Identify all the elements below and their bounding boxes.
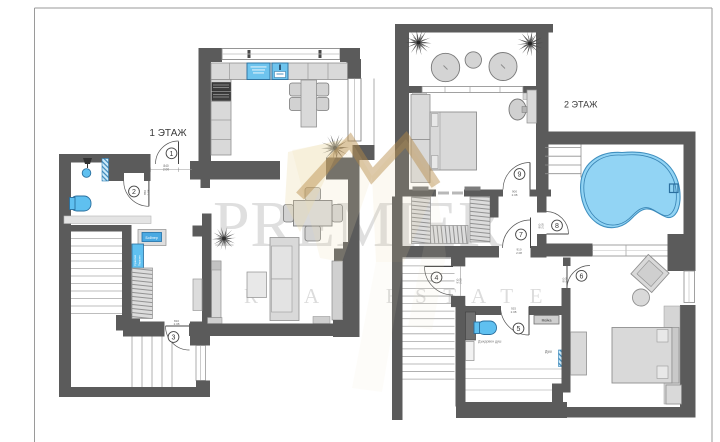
svg-text:8: 8 [555, 223, 559, 230]
svg-text:2.08: 2.08 [174, 322, 180, 326]
svg-text:Сушилня: Сушилня [133, 254, 137, 266]
svg-text:2: 2 [132, 189, 136, 196]
svg-text:2.08: 2.08 [565, 277, 569, 283]
svg-text:Мойка: Мойка [542, 319, 552, 323]
svg-text:2.08: 2.08 [512, 193, 518, 197]
svg-text:6: 6 [580, 274, 584, 281]
svg-text:2.08: 2.08 [516, 251, 522, 255]
svg-text:2.08: 2.08 [541, 223, 545, 229]
svg-text:2.00: 2.00 [163, 168, 169, 172]
svg-text:2.08: 2.08 [511, 310, 517, 314]
svg-text:Душ: Душ [545, 350, 552, 354]
svg-text:1 ЭТАЖ: 1 ЭТАЖ [149, 128, 187, 139]
svg-text:2.08: 2.08 [459, 278, 463, 284]
svg-text:3: 3 [172, 335, 176, 342]
svg-text:2.08: 2.08 [147, 189, 151, 195]
svg-text:9: 9 [518, 172, 522, 179]
svg-text:7: 7 [519, 232, 523, 239]
svg-text:1: 1 [170, 151, 174, 158]
svg-text:Пералня: Пералня [138, 255, 142, 266]
svg-text:5: 5 [517, 326, 521, 333]
svg-text:Дъждовен душ: Дъждовен душ [478, 340, 502, 344]
svg-text:Бойлер: Бойлер [145, 236, 157, 240]
svg-text:2 ЭТАЖ: 2 ЭТАЖ [564, 100, 598, 110]
